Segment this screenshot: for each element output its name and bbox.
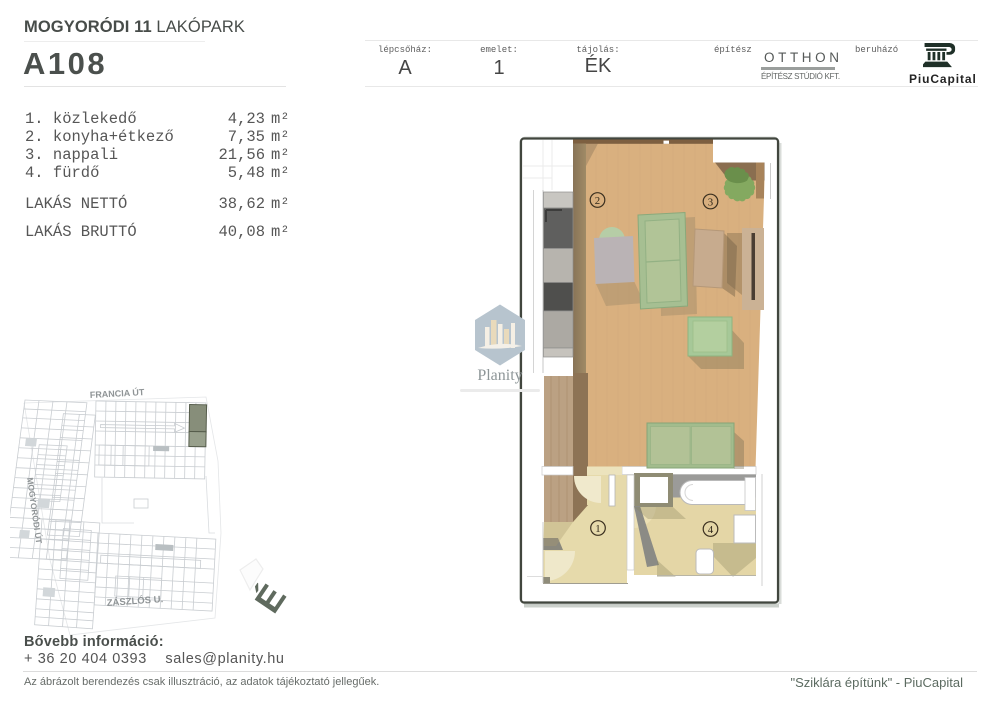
svg-text:3: 3 <box>708 196 713 208</box>
svg-text:FRANCIA ÚT: FRANCIA ÚT <box>89 386 145 400</box>
svg-text:4: 4 <box>708 524 714 536</box>
svg-text:2: 2 <box>595 195 600 207</box>
svg-text:1: 1 <box>595 523 600 535</box>
